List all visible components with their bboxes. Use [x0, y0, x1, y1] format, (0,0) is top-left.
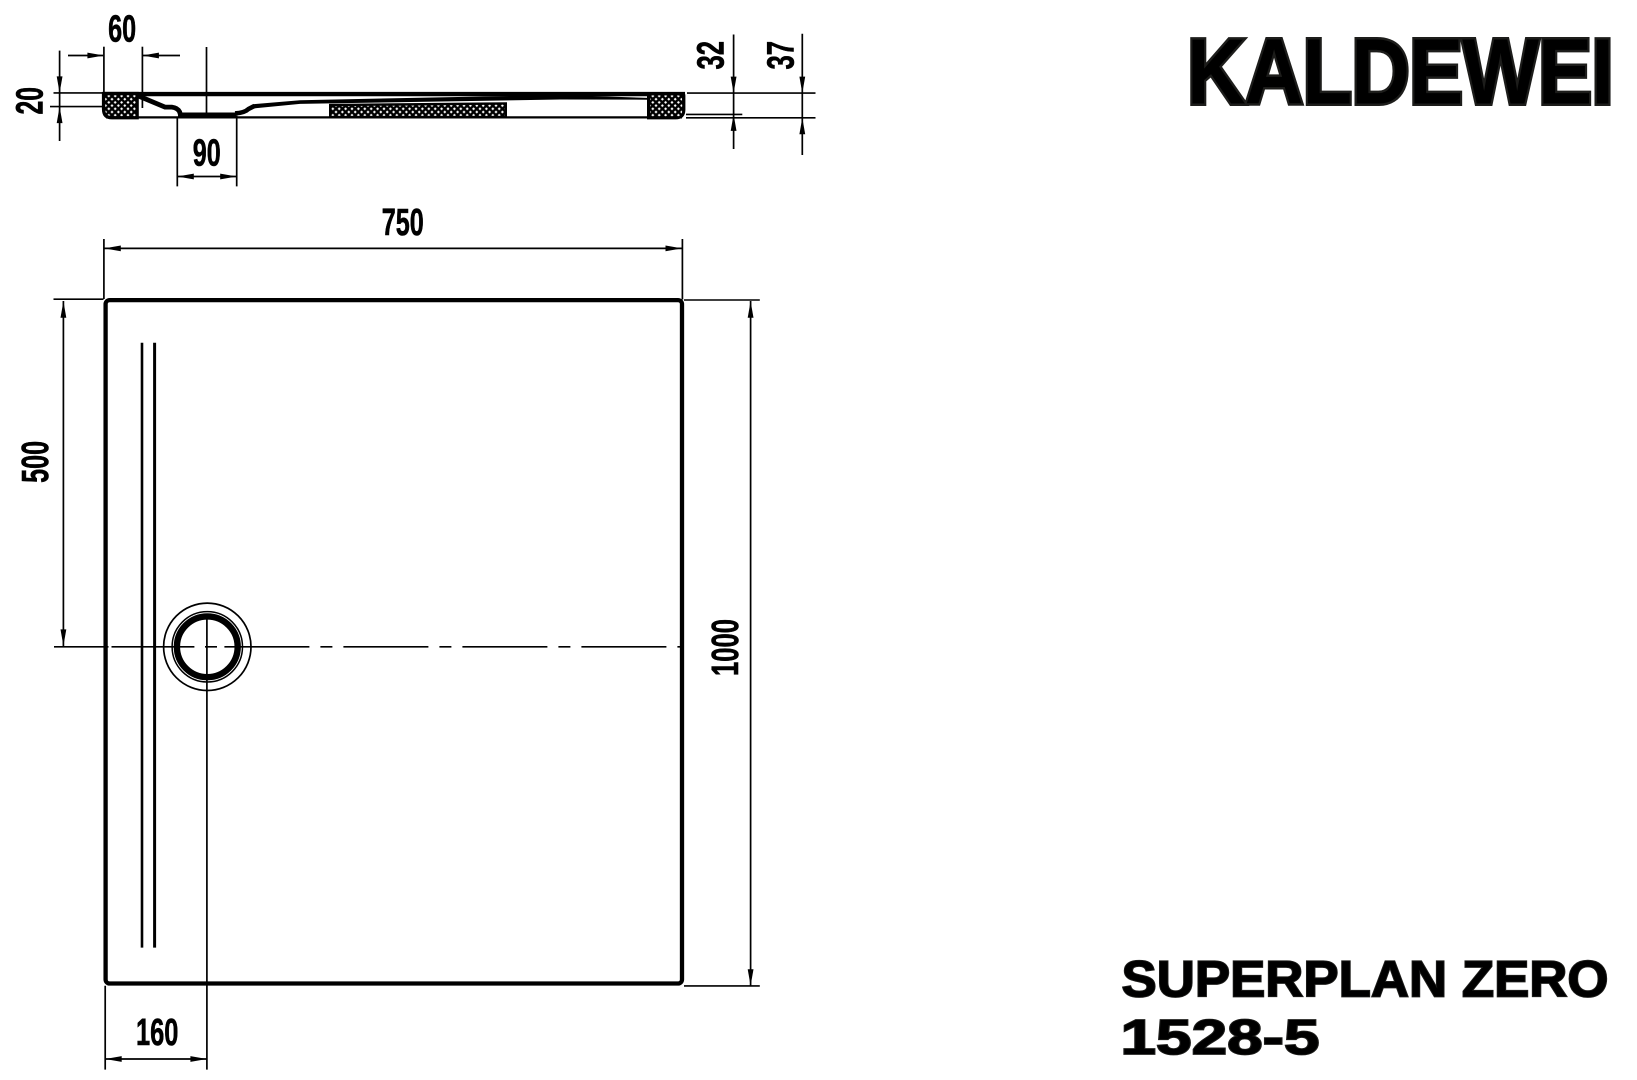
svg-text:60: 60: [108, 9, 136, 51]
svg-text:20: 20: [9, 87, 51, 115]
svg-text:37: 37: [761, 41, 803, 69]
svg-text:160: 160: [136, 1012, 179, 1054]
svg-text:500: 500: [15, 441, 57, 483]
svg-text:KALDEWEI: KALDEWEI: [1187, 20, 1613, 124]
svg-text:SUPERPLAN ZERO: SUPERPLAN ZERO: [1122, 950, 1609, 1007]
svg-text:32: 32: [690, 41, 732, 69]
svg-text:1000: 1000: [705, 619, 747, 676]
svg-text:1528-5: 1528-5: [1121, 1011, 1320, 1065]
svg-text:90: 90: [193, 133, 221, 175]
svg-text:750: 750: [382, 202, 424, 244]
